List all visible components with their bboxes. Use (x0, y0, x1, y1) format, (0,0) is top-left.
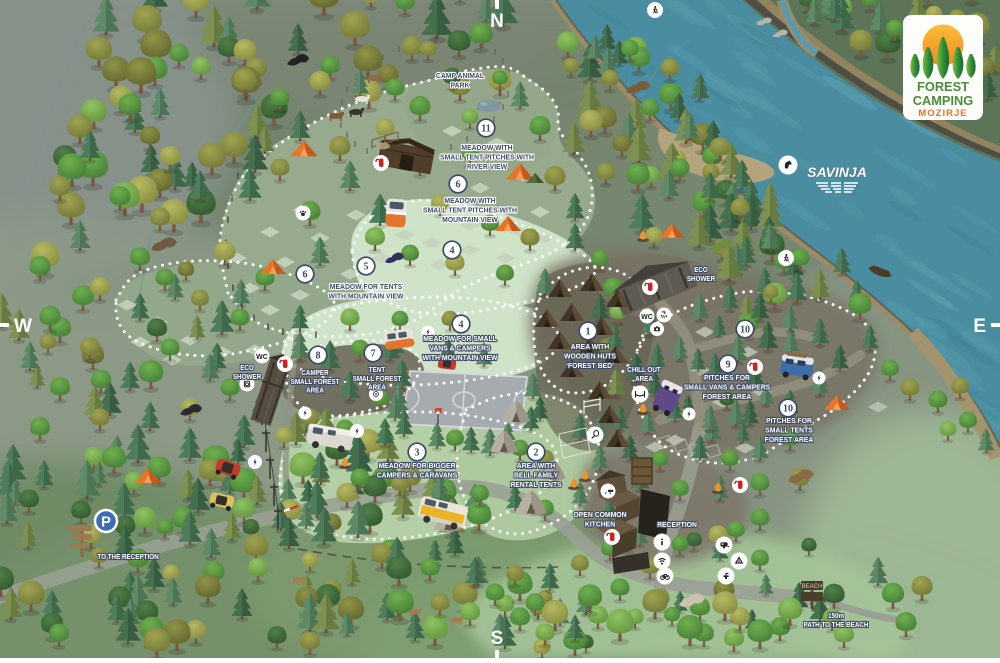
svg-text:CAMPER: CAMPER (301, 370, 328, 377)
svg-text:WC: WC (641, 314, 653, 321)
svg-text:WC: WC (256, 354, 268, 361)
svg-text:FOREST AREA: FOREST AREA (703, 391, 752, 400)
svg-text:CAMPING: CAMPING (913, 93, 973, 108)
svg-text:OPEN COMMON: OPEN COMMON (573, 510, 626, 519)
svg-text:11: 11 (481, 123, 491, 134)
svg-text:AREA WITH: AREA WITH (517, 461, 555, 470)
svg-text:E: E (973, 316, 986, 337)
svg-text:PITCHES FOR: PITCHES FOR (704, 373, 751, 382)
svg-text:9: 9 (725, 359, 730, 370)
svg-text:10: 10 (783, 403, 793, 414)
svg-text:WITH MOUNTAIN VIEW: WITH MOUNTAIN VIEW (423, 352, 498, 361)
svg-text:1: 1 (585, 326, 590, 337)
svg-text:PARK: PARK (451, 80, 471, 89)
svg-text:FOREST AREA: FOREST AREA (765, 434, 814, 443)
svg-text:BEACH: BEACH (802, 584, 823, 590)
svg-text:5: 5 (363, 261, 368, 272)
svg-text:ECO: ECO (694, 267, 708, 274)
svg-text:MEADOW WITH: MEADOW WITH (461, 143, 512, 152)
svg-text:KITCHEN: KITCHEN (585, 519, 615, 528)
svg-text:SMALL VANS & CAMPERS: SMALL VANS & CAMPERS (684, 382, 771, 391)
svg-text:W: W (14, 316, 32, 337)
svg-text:BELL FAMILY: BELL FAMILY (514, 470, 558, 479)
svg-text:‘FOREST BED’: ‘FOREST BED’ (566, 360, 614, 369)
svg-text:PATH TO THE BEACH: PATH TO THE BEACH (804, 622, 869, 629)
svg-text:MEADOW FOR SMALL: MEADOW FOR SMALL (423, 334, 497, 343)
svg-text:CAMP ANIMAL: CAMP ANIMAL (436, 71, 485, 80)
svg-text:MEADOW FOR BIGGER: MEADOW FOR BIGGER (378, 461, 456, 470)
svg-text:ECO: ECO (240, 365, 254, 372)
svg-text:RIVER VIEW: RIVER VIEW (467, 161, 507, 170)
svg-text:7: 7 (370, 348, 376, 359)
svg-text:4: 4 (449, 245, 455, 256)
svg-text:MOUNTAIN VIEW: MOUNTAIN VIEW (442, 214, 498, 223)
svg-text:2: 2 (533, 447, 538, 458)
svg-text:SHOWER: SHOWER (687, 276, 715, 283)
svg-text:RECEPTION: RECEPTION (657, 520, 697, 529)
svg-text:SMALL TENT PITCHES WITH: SMALL TENT PITCHES WITH (423, 205, 517, 214)
svg-text:AREA: AREA (635, 376, 653, 383)
svg-text:CAMPERS & CARAVANS: CAMPERS & CARAVANS (377, 470, 458, 479)
svg-text:8: 8 (315, 350, 320, 361)
svg-text:WITH MOUNTAIN VIEW: WITH MOUNTAIN VIEW (329, 291, 404, 300)
svg-text:WOODEN HUTS: WOODEN HUTS (564, 351, 616, 360)
svg-text:6: 6 (455, 179, 460, 190)
svg-text:3: 3 (414, 447, 419, 458)
svg-text:4: 4 (458, 319, 464, 330)
svg-text:CHILL OUT: CHILL OUT (627, 367, 660, 374)
svg-text:AREA WITH: AREA WITH (571, 342, 609, 351)
svg-text:P: P (101, 514, 111, 531)
svg-text:SMALL TENT PITCHES WITH: SMALL TENT PITCHES WITH (440, 152, 534, 161)
svg-text:SMALL FOREST: SMALL FOREST (291, 379, 340, 386)
svg-text:RENTAL TENTS: RENTAL TENTS (510, 479, 562, 488)
svg-text:SMALL FOREST: SMALL FOREST (353, 376, 402, 383)
svg-text:SHOWER: SHOWER (233, 374, 261, 381)
svg-text:MEADOW FOR TENTS: MEADOW FOR TENTS (330, 282, 403, 291)
svg-text:TENT: TENT (369, 367, 385, 374)
svg-text:MOZIRJE: MOZIRJE (918, 108, 967, 119)
svg-text:10: 10 (740, 324, 750, 335)
svg-text:N: N (490, 11, 504, 32)
svg-text:6: 6 (302, 269, 307, 280)
svg-text:PITCHES FOR: PITCHES FOR (766, 416, 813, 425)
svg-text:FOREST: FOREST (917, 79, 969, 94)
svg-text:150m: 150m (828, 613, 844, 620)
svg-text:MEADOW WITH: MEADOW WITH (444, 196, 495, 205)
svg-text:S: S (491, 628, 504, 649)
svg-text:AREA: AREA (368, 384, 386, 391)
svg-text:SMALL TENTS: SMALL TENTS (765, 425, 813, 434)
svg-text:SAVINJA: SAVINJA (807, 164, 867, 180)
svg-text:VANS & CAMPERS: VANS & CAMPERS (429, 343, 491, 352)
svg-text:AREA: AREA (306, 387, 324, 394)
svg-text:TO THE RECEPTION: TO THE RECEPTION (97, 554, 159, 561)
